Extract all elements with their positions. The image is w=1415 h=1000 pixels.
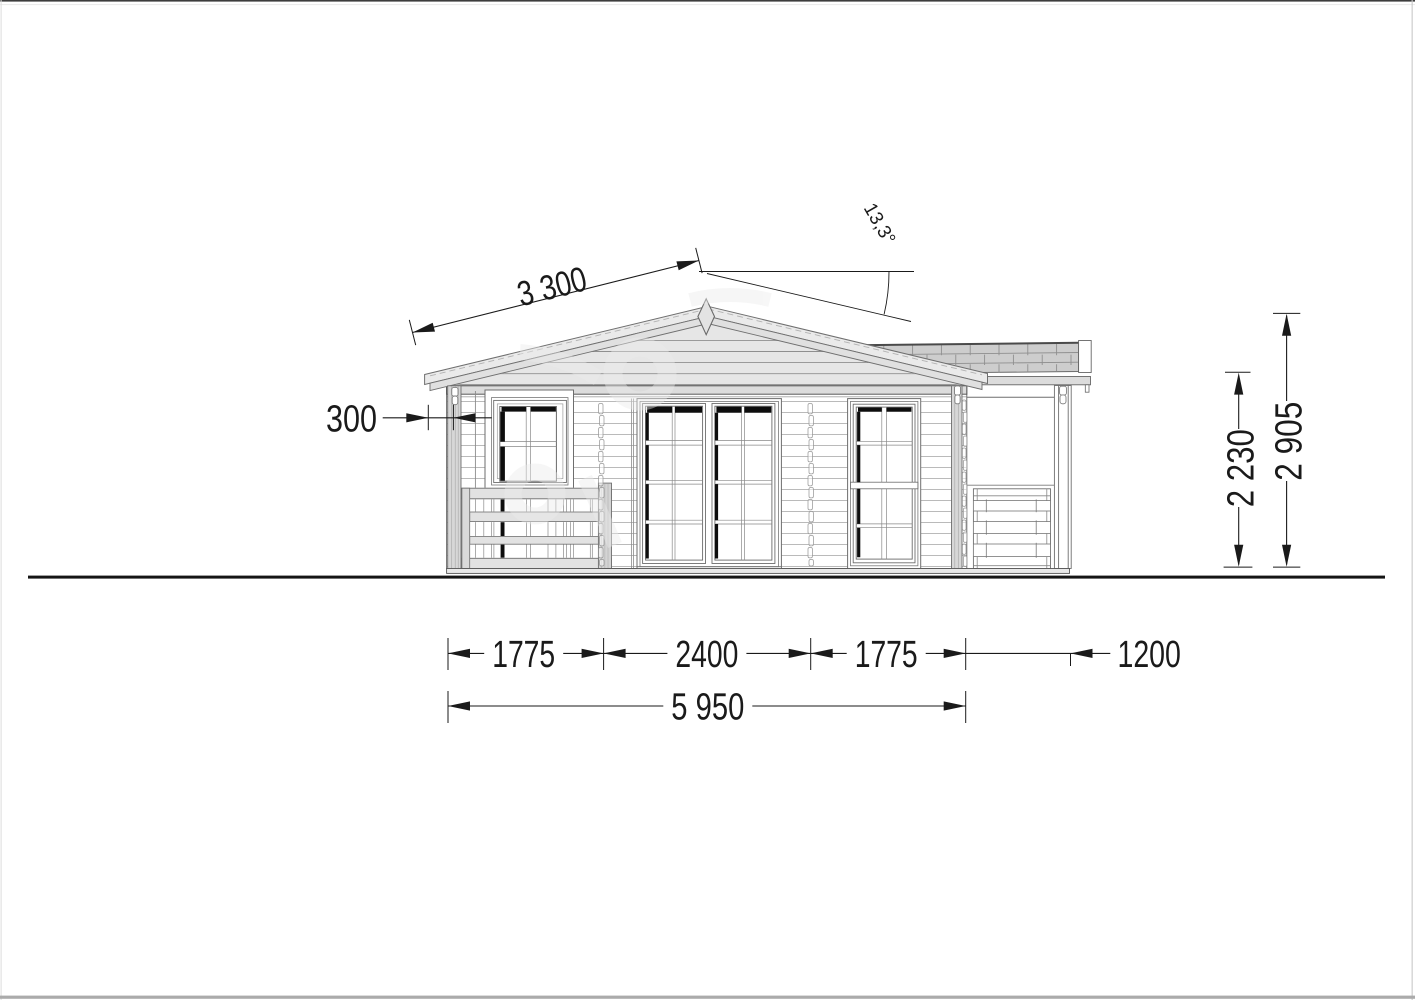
svg-text:2 905: 2 905 (1268, 402, 1310, 481)
svg-text:13,3°: 13,3° (859, 200, 899, 249)
svg-text:5 950: 5 950 (671, 687, 744, 729)
svg-text:3 300: 3 300 (513, 259, 590, 314)
svg-text:1775: 1775 (492, 634, 555, 676)
svg-text:300: 300 (326, 398, 377, 440)
svg-text:1200: 1200 (1117, 634, 1181, 676)
svg-text:2400: 2400 (675, 634, 738, 676)
svg-text:2 230: 2 230 (1220, 429, 1262, 507)
svg-text:1775: 1775 (855, 634, 918, 676)
